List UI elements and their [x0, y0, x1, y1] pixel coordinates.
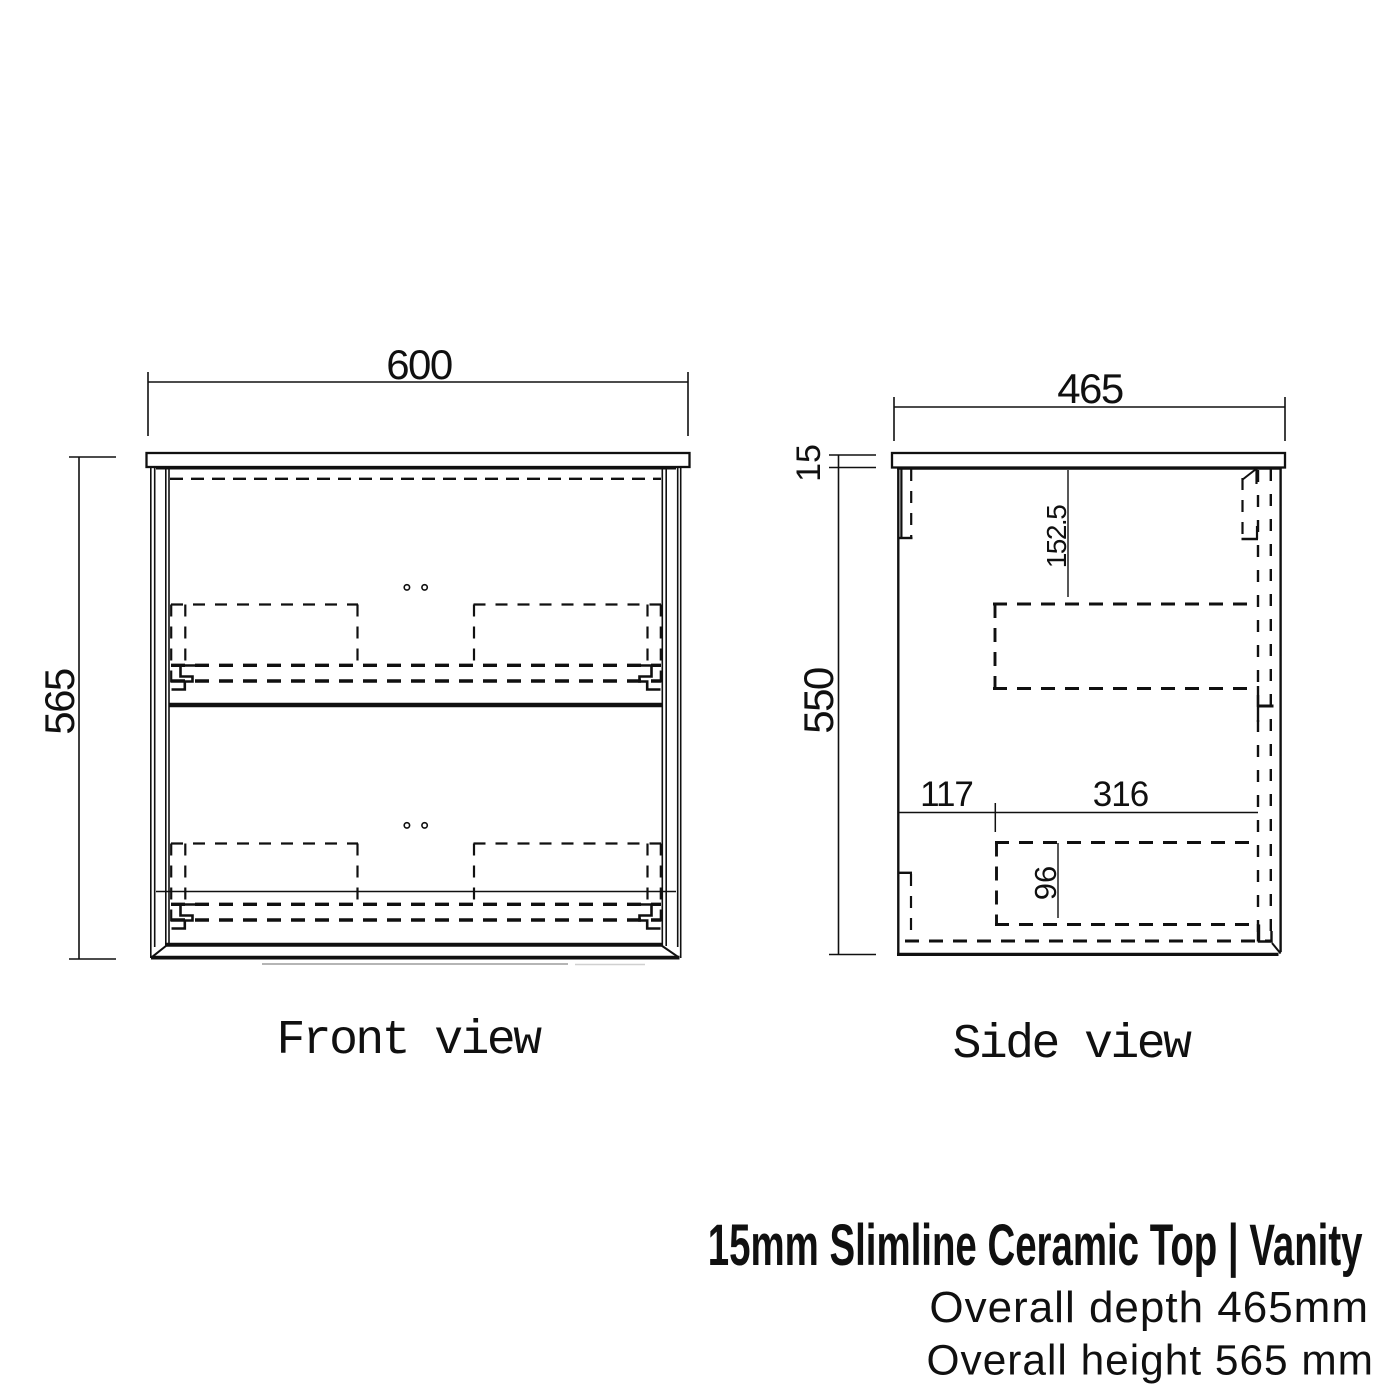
svg-text:Side view: Side view: [953, 1018, 1192, 1072]
svg-text:15: 15: [790, 444, 828, 482]
svg-text:600: 600: [386, 341, 452, 388]
svg-text:117: 117: [920, 775, 973, 814]
svg-text:565: 565: [36, 669, 83, 735]
svg-text:465: 465: [1057, 365, 1123, 412]
svg-text:550: 550: [795, 668, 842, 734]
svg-text:Overall height 565 mm: Overall height 565 mm: [927, 1337, 1374, 1384]
svg-text:152.5: 152.5: [1041, 505, 1072, 568]
svg-text:316: 316: [1093, 775, 1148, 814]
svg-text:Overall depth 465mm: Overall depth 465mm: [929, 1283, 1369, 1332]
svg-text:96: 96: [1028, 866, 1063, 900]
svg-text:15mm Slimline Ceramic Top | Va: 15mm Slimline Ceramic Top | Vanity: [708, 1213, 1363, 1279]
svg-text:Front view: Front view: [276, 1014, 542, 1068]
